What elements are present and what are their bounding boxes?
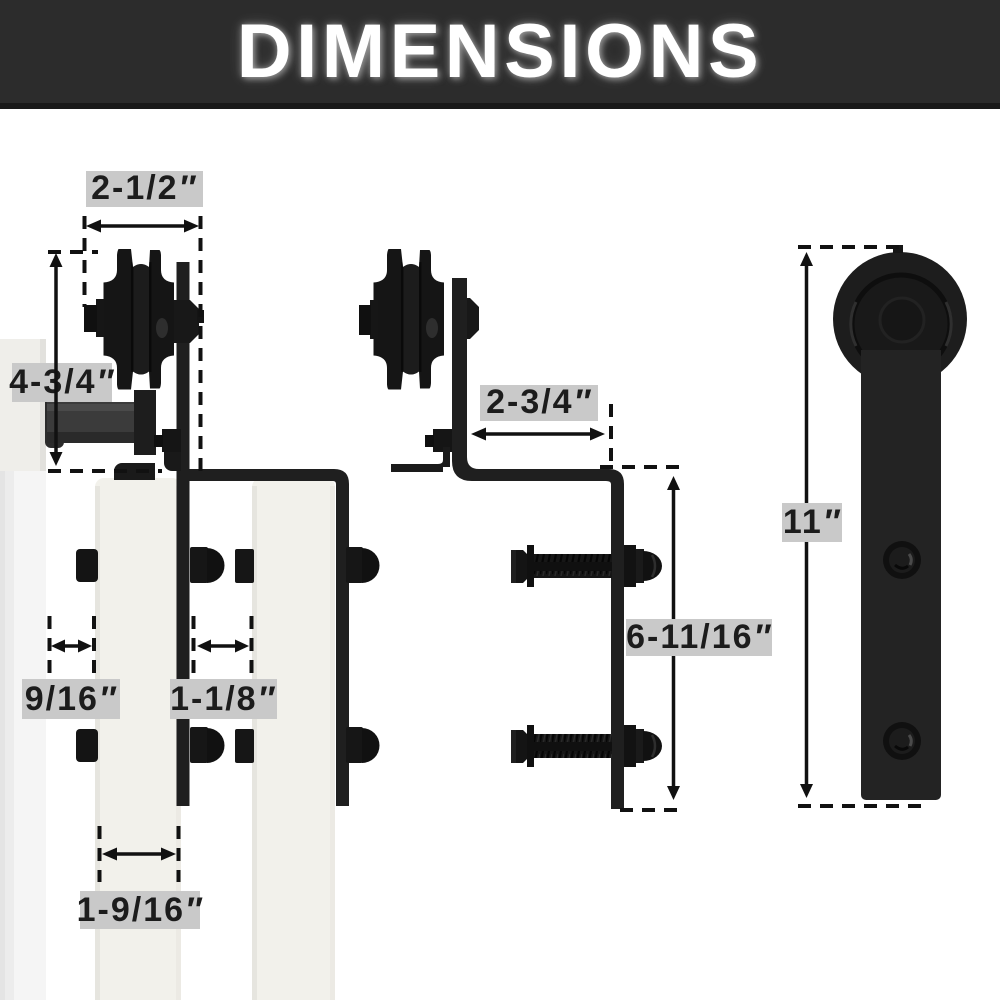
svg-text:9/16″: 9/16″ <box>25 680 117 718</box>
svg-text:11″: 11″ <box>783 503 841 541</box>
svg-text:2-3/4″: 2-3/4″ <box>486 383 592 421</box>
svg-text:6-11/16″: 6-11/16″ <box>626 618 772 656</box>
svg-text:1-9/16″: 1-9/16″ <box>77 891 204 929</box>
svg-text:2-1/2″: 2-1/2″ <box>91 169 197 207</box>
svg-text:4-3/4″: 4-3/4″ <box>9 363 115 401</box>
svg-text:1-1/8″: 1-1/8″ <box>170 680 276 718</box>
